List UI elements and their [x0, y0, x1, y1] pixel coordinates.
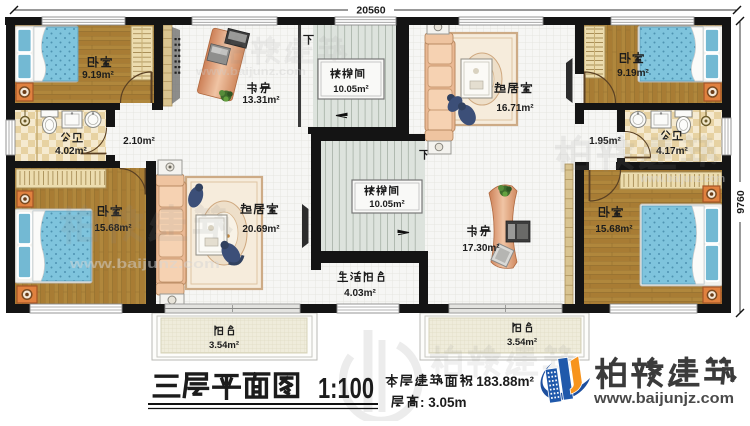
svg-text:: 3.05m: : 3.05m [420, 395, 467, 410]
svg-text:4.02m²: 4.02m² [55, 146, 87, 157]
svg-text:16.71m²: 16.71m² [496, 103, 534, 114]
svg-text:10.05m²: 10.05m² [369, 199, 404, 210]
svg-text:9.19m²: 9.19m² [617, 68, 649, 79]
svg-text:20.69m²: 20.69m² [242, 224, 280, 235]
svg-text:9.19m²: 9.19m² [82, 70, 114, 81]
svg-text:17.30m²: 17.30m² [462, 243, 500, 254]
svg-text:www.baijunz.com: www.baijunz.com [195, 66, 306, 78]
svg-text:www.baijunjz.com: www.baijunjz.com [593, 390, 734, 407]
svg-text:15.68m²: 15.68m² [595, 224, 633, 235]
svg-text:www.baijunz.com: www.baijunz.com [69, 256, 220, 271]
svg-text:4.03m²: 4.03m² [344, 288, 376, 299]
svg-text:20560: 20560 [356, 5, 385, 17]
svg-text:9760: 9760 [735, 190, 747, 214]
svg-text:www.baijunz.com: www.baijunz.com [639, 173, 725, 185]
svg-text:3.54m²: 3.54m² [209, 340, 239, 351]
svg-text:3.54m²: 3.54m² [507, 337, 537, 348]
svg-text:: 183.88m²: : 183.88m² [468, 374, 535, 389]
svg-text:2.10m²: 2.10m² [123, 136, 155, 147]
svg-text:10.05m²: 10.05m² [333, 84, 368, 95]
svg-text:1:100: 1:100 [318, 373, 374, 405]
svg-text:13.31m²: 13.31m² [242, 95, 280, 106]
